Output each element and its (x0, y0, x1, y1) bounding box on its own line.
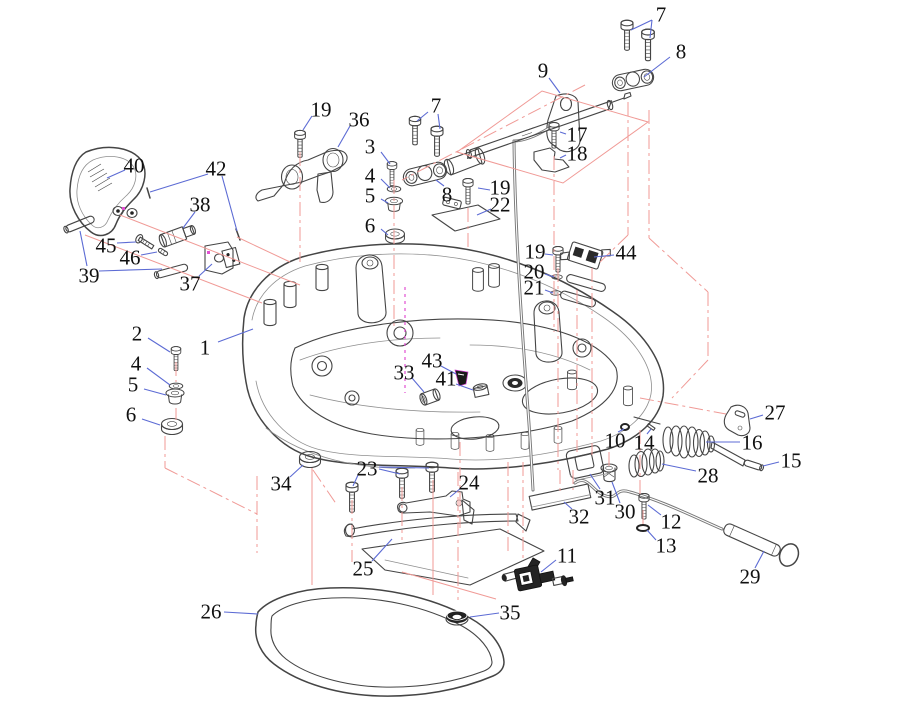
leader-line-6 (142, 419, 160, 425)
part-number-6: 6 (365, 214, 376, 238)
leader-line-34 (290, 465, 303, 477)
callout-part-38: 38 (183, 193, 211, 229)
leader-line-7 (631, 20, 652, 30)
leader-line-35 (470, 613, 499, 617)
part-number-5: 5 (365, 184, 376, 208)
callout-part-14: 14 (634, 429, 656, 455)
leader-line-18 (560, 155, 566, 158)
part-number-26: 26 (201, 600, 222, 624)
part-number-25: 25 (353, 557, 374, 581)
callout-part-2: 2 (132, 322, 170, 353)
callout-part-3: 3 (365, 135, 390, 165)
seal-ring (256, 588, 504, 696)
leader-line-26 (224, 612, 258, 614)
part-number-44: 44 (616, 241, 638, 265)
leader-line-41 (456, 384, 473, 390)
part-number-31: 31 (595, 486, 616, 510)
leader-line-4 (381, 179, 390, 188)
callout-layer: 1234567897817181936192219202144404238454… (79, 3, 802, 625)
link-plate (611, 68, 655, 92)
callout-part-19: 19 (303, 98, 332, 131)
part-number-30: 30 (615, 500, 636, 524)
part-number-10: 10 (605, 429, 626, 453)
part-number-29: 29 (740, 565, 761, 589)
clamp-bracket (256, 149, 347, 203)
callout-part-6: 6 (365, 214, 388, 238)
leader-line-40 (107, 170, 125, 178)
friction-rod-end (744, 459, 765, 471)
leader-line-28 (662, 464, 696, 471)
part-number-18: 18 (567, 142, 588, 166)
callout-part-7: 7 (631, 3, 666, 39)
leader-line-5 (381, 199, 388, 203)
callout-part-35: 35 (470, 601, 521, 625)
bottom-cowling (222, 244, 664, 469)
steering-hook-bracket (205, 242, 233, 274)
part-number-21: 21 (524, 276, 545, 300)
callout-part-30: 30 (612, 482, 636, 524)
leader-line-46 (141, 252, 157, 255)
part-number-19: 19 (311, 98, 332, 122)
part-number-27: 27 (765, 401, 786, 425)
part-number-24: 24 (459, 471, 481, 495)
callout-part-1: 1 (200, 329, 253, 360)
plug-cap (473, 383, 489, 398)
stop-switch (559, 235, 612, 274)
leader-line-9 (549, 78, 560, 93)
leader-line-19 (478, 188, 490, 190)
part-number-7: 7 (431, 94, 442, 118)
part-number-33: 33 (394, 361, 415, 385)
part-number-34: 34 (271, 472, 293, 496)
leader-line-3 (381, 152, 390, 164)
callout-part-40: 40 (107, 154, 145, 179)
part-number-9: 9 (538, 59, 549, 83)
callout-part-22: 22 (477, 193, 511, 217)
part-number-46: 46 (120, 246, 141, 270)
callout-part-29: 29 (740, 551, 765, 589)
shift-arm-plate (344, 514, 544, 585)
callout-part-23: 23 (353, 457, 429, 487)
part-number-32: 32 (569, 505, 590, 529)
part-number-39: 39 (79, 264, 100, 288)
cable-clip (455, 370, 468, 386)
callout-part-41: 41 (436, 367, 474, 391)
part-number-37: 37 (180, 272, 201, 296)
callout-part-12: 12 (648, 505, 682, 534)
leader-line-17 (560, 132, 566, 134)
callout-part-21: 21 (524, 276, 554, 300)
callout-part-8: 8 (436, 180, 452, 207)
part-number-8: 8 (442, 183, 453, 207)
leader-line-2 (148, 338, 170, 352)
fasteners (162, 20, 655, 531)
leader-line-19 (545, 254, 553, 255)
parts-diagram: 1234567897817181936192219202144404238454… (0, 0, 912, 720)
leader-line-11 (541, 560, 556, 572)
part-number-1: 1 (200, 336, 211, 360)
leader-line-5 (144, 389, 166, 395)
roller (158, 223, 197, 248)
callout-part-32: 32 (564, 502, 590, 529)
callout-part-31: 31 (590, 474, 616, 510)
leader-line-12 (648, 505, 661, 515)
callout-part-10: 10 (605, 429, 626, 453)
part-number-5: 5 (128, 373, 139, 397)
callout-part-6: 6 (126, 403, 160, 427)
callout-part-13: 13 (647, 530, 677, 558)
part-number-13: 13 (656, 534, 677, 558)
leader-line-42 (222, 176, 237, 231)
callout-part-5: 5 (365, 184, 388, 208)
spring-pin (158, 248, 169, 257)
part-number-11: 11 (557, 544, 577, 568)
part-number-23: 23 (357, 457, 378, 481)
callout-part-9: 9 (538, 59, 560, 94)
callout-part-37: 37 (180, 264, 213, 296)
callout-part-11: 11 (541, 544, 577, 573)
callout-part-24: 24 (450, 471, 480, 498)
part-number-3: 3 (365, 135, 376, 159)
part-number-28: 28 (698, 464, 719, 488)
leader-line-1 (218, 329, 253, 342)
part-number-36: 36 (349, 108, 370, 132)
callout-part-28: 28 (662, 464, 719, 488)
diagram-canvas: 1234567897817181936192219202144404238454… (0, 0, 912, 720)
leader-line-8 (644, 57, 670, 77)
leader-line-15 (763, 462, 779, 466)
leader-line-45 (117, 242, 136, 243)
callout-part-26: 26 (201, 600, 259, 624)
pivot-bushing (419, 388, 442, 406)
callout-part-15: 15 (763, 449, 802, 473)
leader-line-25 (372, 539, 392, 561)
part-number-16: 16 (742, 431, 763, 455)
leader-line-4 (147, 368, 170, 385)
callout-part-34: 34 (271, 465, 304, 496)
shift-lever (398, 491, 474, 524)
part-number-40: 40 (124, 154, 145, 178)
part-number-45: 45 (96, 234, 117, 258)
part-number-7: 7 (656, 3, 667, 27)
cowling-grommet (446, 611, 468, 625)
leader-line-42 (150, 174, 208, 192)
part-number-22: 22 (490, 193, 511, 217)
callout-part-25: 25 (353, 539, 393, 581)
callout-part-27: 27 (750, 401, 786, 425)
leader-line-39 (80, 231, 87, 266)
part-number-2: 2 (132, 322, 143, 346)
part-number-8: 8 (676, 40, 687, 64)
part-number-35: 35 (500, 601, 521, 625)
part-number-6: 6 (126, 403, 137, 427)
callout-part-5: 5 (128, 373, 166, 397)
part-number-12: 12 (661, 510, 682, 534)
part-number-15: 15 (781, 449, 802, 473)
part-number-41: 41 (436, 367, 457, 391)
part-number-38: 38 (190, 193, 211, 217)
callout-part-33: 33 (394, 361, 425, 393)
callout-part-16: 16 (706, 431, 763, 455)
part-number-14: 14 (634, 431, 656, 455)
part-number-42: 42 (206, 157, 227, 181)
leader-line-27 (750, 415, 763, 419)
